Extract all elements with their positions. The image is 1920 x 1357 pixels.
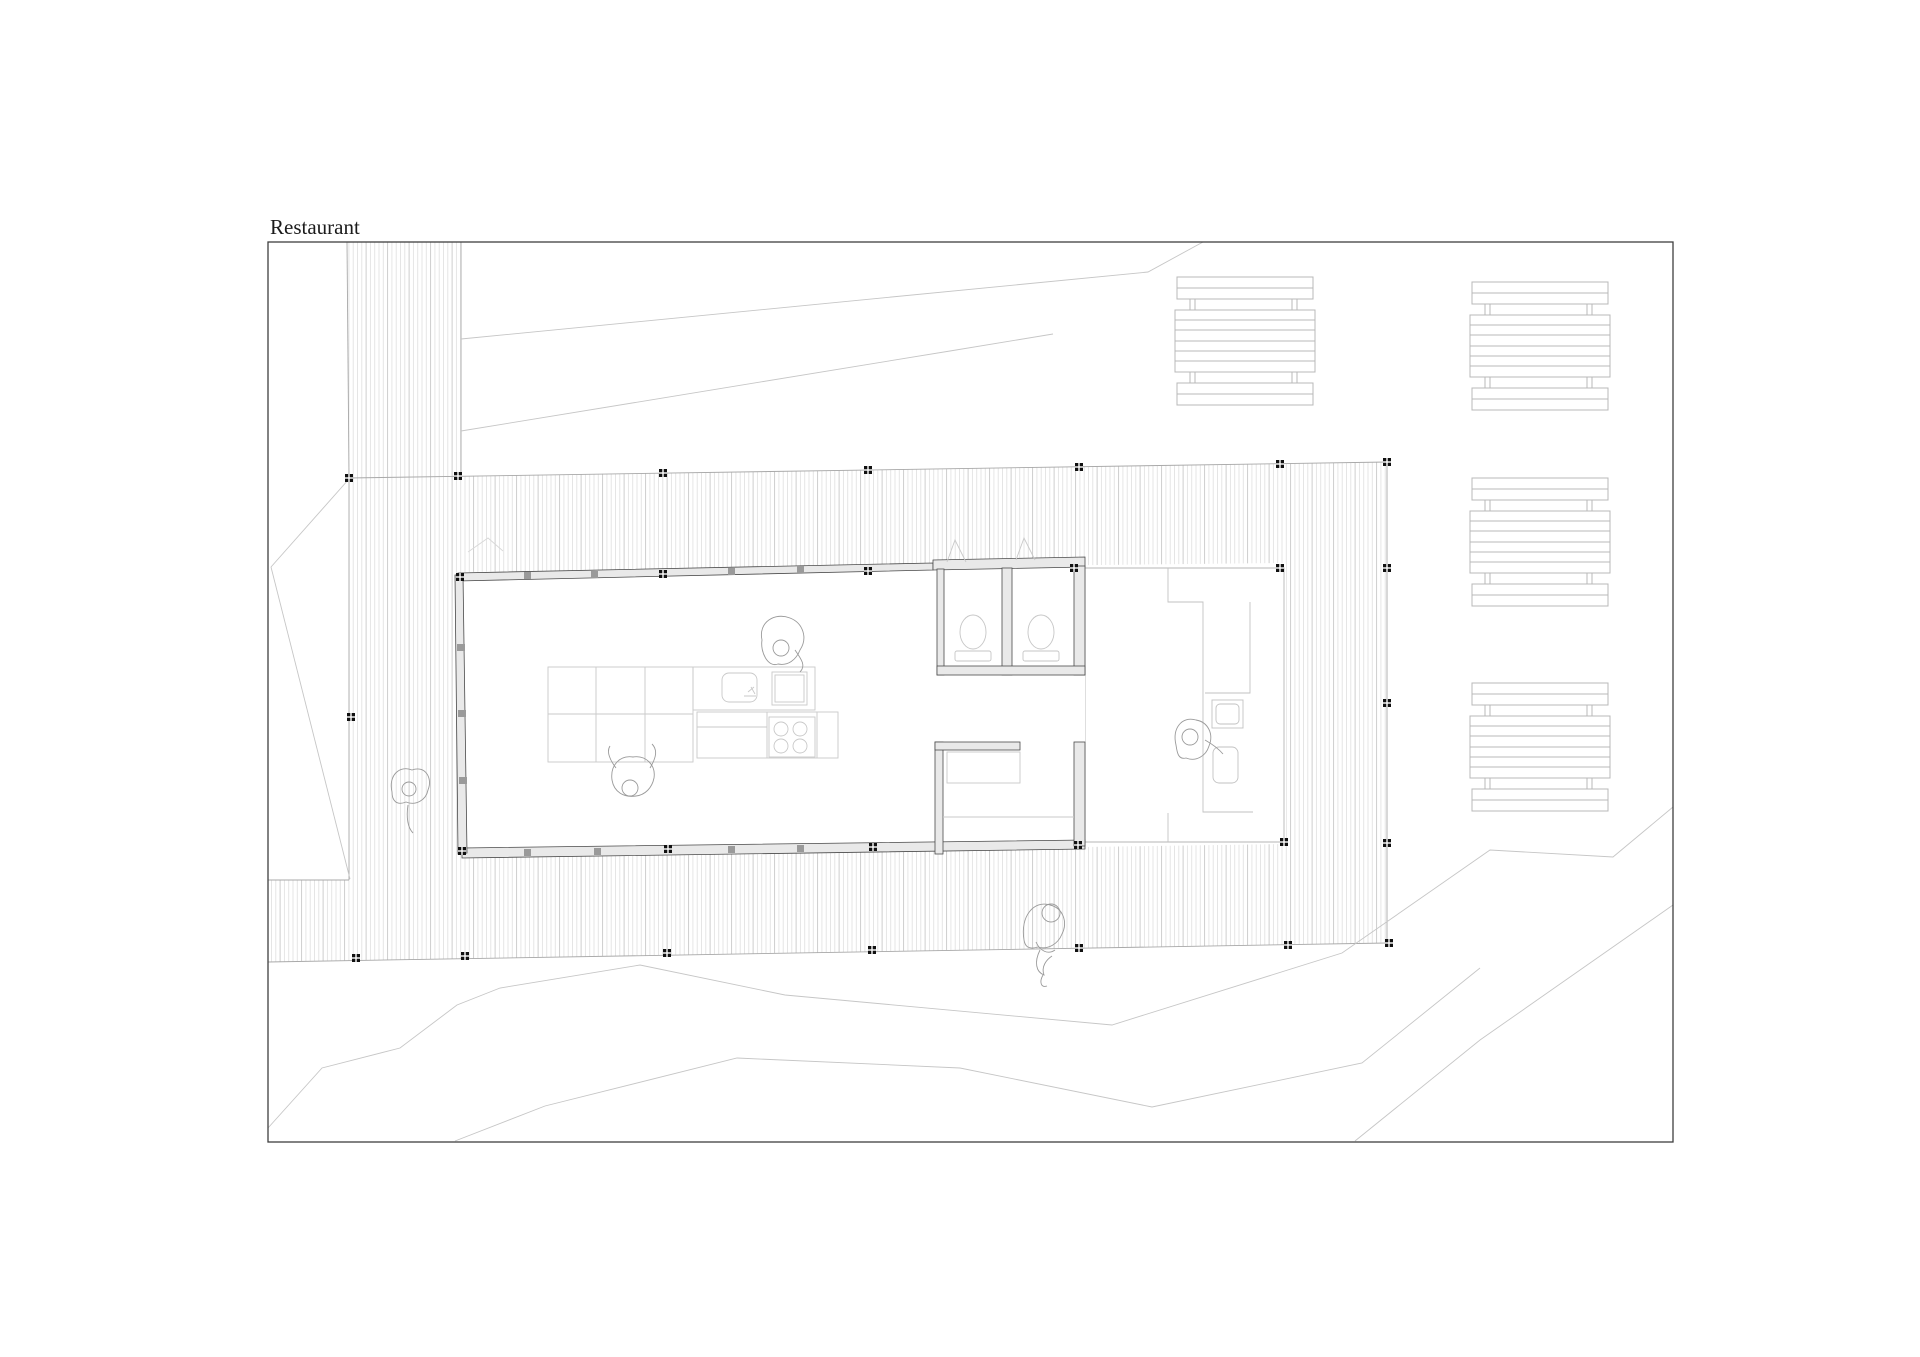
wc-east-wall <box>1074 566 1085 675</box>
terrace <box>1085 568 1284 842</box>
storage-west-wall <box>935 742 943 854</box>
picnic-table-1 <box>1175 277 1315 405</box>
wc-west-wall <box>937 569 944 675</box>
storage-north-wall <box>935 742 1020 750</box>
picnic-table-4 <box>1470 683 1610 811</box>
wc-south-wall <box>937 666 1085 675</box>
restaurant-building <box>455 538 1085 858</box>
floor-plan-sheet: Restaurant <box>0 0 1920 1357</box>
wc-middle-wall <box>1002 568 1012 675</box>
picnic-table-2 <box>1470 282 1610 410</box>
page-title: Restaurant <box>270 215 360 239</box>
storage-east-wall <box>1074 742 1085 846</box>
picnic-table-3 <box>1470 478 1610 606</box>
